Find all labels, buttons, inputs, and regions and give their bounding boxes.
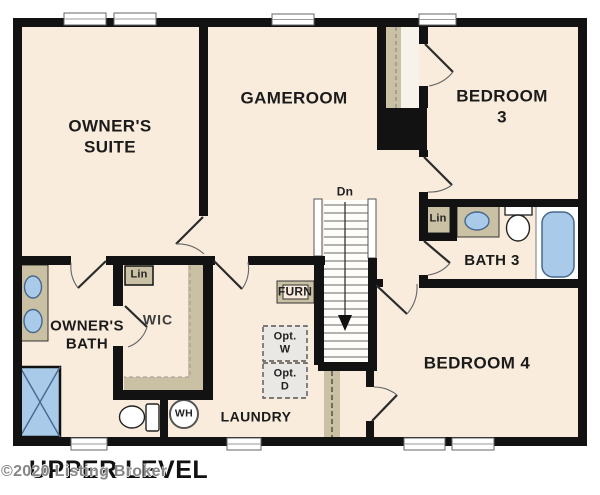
shower [20, 367, 60, 437]
label-furnace: FURN [278, 285, 312, 300]
room-label-owners-bath: OWNER'S BATH [50, 318, 124, 355]
label-linen-bath3: Lin [429, 212, 446, 225]
room-label-bedroom3: BEDROOM 3 [453, 86, 551, 127]
room-label-wic: WIC [143, 311, 173, 328]
bedroom4-closet-shelf [324, 371, 340, 437]
sink-icon [24, 310, 42, 333]
room-label-owners-suite: OWNER'S SUITE [68, 116, 151, 157]
bathtub [536, 206, 579, 283]
stair-rail-right [368, 199, 376, 258]
label-opt-dryer: Opt. D [274, 368, 297, 395]
floor-plan-canvas [0, 0, 600, 495]
label-opt-washer: Opt. W [274, 331, 297, 358]
watermark: ©2020 Listing Broker [1, 462, 167, 482]
label-water-heater: WH [175, 408, 193, 421]
label-stairs-down: Dn [337, 185, 353, 200]
chase-block [377, 108, 427, 150]
room-label-laundry: LAUNDRY [221, 408, 292, 425]
floor-plan-page: OWNER'S SUITE GAMEROOM BEDROOM 3 BEDROOM… [0, 0, 600, 495]
chimney-chase [386, 27, 419, 108]
toilet-icon [505, 206, 532, 241]
stair-rail-left [314, 199, 322, 256]
label-linen-wic: Lin [130, 268, 147, 281]
sink-icon [25, 276, 42, 298]
room-label-bath3: BATH 3 [464, 252, 519, 270]
room-label-gameroom: GAMEROOM [240, 89, 347, 110]
sink-icon [465, 212, 489, 230]
room-label-bedroom4: BEDROOM 4 [424, 354, 531, 375]
